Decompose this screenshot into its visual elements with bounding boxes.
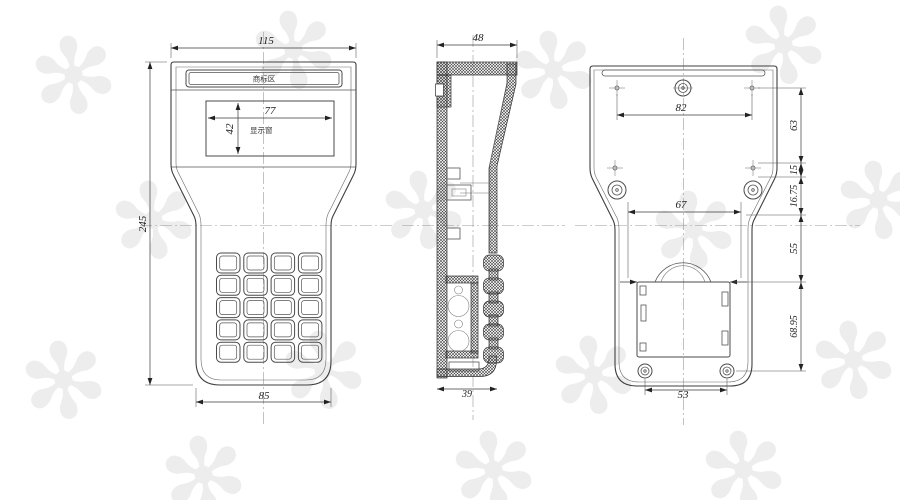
side-back-sloped-wall-section bbox=[489, 64, 516, 253]
side-top-cap-section bbox=[437, 62, 517, 75]
front-height-dim: 245 bbox=[137, 215, 149, 232]
battery-cover-clips bbox=[640, 286, 728, 351]
back-boss-right bbox=[744, 181, 762, 199]
back-view: 82 67 bbox=[575, 38, 860, 425]
three-view-drawing: 商标区 显示窗 77 42 115 245 bbox=[0, 0, 900, 500]
back-hole-mark-mid-right bbox=[745, 160, 761, 176]
keypad-key-inner bbox=[220, 345, 237, 359]
side-boss-2 bbox=[447, 185, 471, 200]
back-hole-mark-top-right bbox=[744, 80, 760, 96]
side-bottom-dim: 39 bbox=[461, 389, 472, 400]
display-height-dim: 42 bbox=[224, 123, 236, 135]
keypad-key-inner bbox=[247, 323, 264, 337]
keypad-key-inner bbox=[247, 345, 264, 359]
back-bottom-screw-left bbox=[638, 364, 652, 378]
keypad-key-inner bbox=[274, 278, 291, 292]
battery-cover-grip-arch-inner bbox=[661, 266, 705, 282]
back-bottom-screw-right bbox=[720, 364, 734, 378]
back-mid-holes-dim: 67 bbox=[676, 199, 688, 211]
keypad-key-inner bbox=[247, 256, 264, 270]
drawing-canvas: ✻✻✻✻✻✻✻✻✻✻✻✻✻✻✻ 商标区 显示窗 bbox=[0, 0, 900, 500]
back-dim-15: 15 bbox=[789, 165, 800, 175]
back-dim-63: 63 bbox=[788, 120, 800, 132]
front-width-dim: 115 bbox=[258, 35, 274, 47]
back-dim-68-95: 68.95 bbox=[789, 315, 800, 338]
keypad-grid bbox=[217, 253, 322, 362]
keypad-key-inner bbox=[274, 323, 291, 337]
keypad-key-inner bbox=[274, 345, 291, 359]
keypad-key-inner bbox=[220, 256, 237, 270]
back-bottom-screws-dim: 53 bbox=[678, 389, 690, 401]
trademark-area-label: 商标区 bbox=[253, 74, 276, 84]
back-right-dim-chain: 63 15 16.75 55 68.95 bbox=[733, 88, 806, 371]
back-boss-left bbox=[608, 181, 626, 199]
back-hole-mark-mid-left bbox=[607, 160, 623, 176]
keypad-key-inner bbox=[302, 323, 319, 337]
side-view: 48 39 bbox=[402, 32, 565, 420]
keypad-key-inner bbox=[302, 278, 319, 292]
keypad-key-inner bbox=[274, 301, 291, 315]
back-top-center-boss bbox=[673, 80, 693, 96]
side-left-wall-section bbox=[437, 62, 447, 378]
display-width-dim: 77 bbox=[265, 105, 277, 117]
keypad-key-inner bbox=[220, 323, 237, 337]
display-window-label: 显示窗 bbox=[250, 125, 273, 135]
battery-section-circle bbox=[448, 331, 469, 352]
battery-section-circle bbox=[448, 296, 469, 317]
side-battery-compartment bbox=[446, 276, 478, 358]
side-top-left-notch bbox=[436, 84, 444, 96]
back-top-holes-dim: 82 bbox=[676, 102, 688, 114]
keypad-key-inner bbox=[220, 301, 237, 315]
front-bottom-dim: 85 bbox=[259, 390, 271, 402]
side-boss-1 bbox=[447, 168, 460, 179]
keypad-key-inner bbox=[247, 278, 264, 292]
side-depth-dim: 48 bbox=[473, 32, 485, 44]
keypad-key-inner bbox=[220, 278, 237, 292]
battery-section-circle bbox=[455, 286, 463, 294]
keypad-key-inner bbox=[274, 256, 291, 270]
back-dim-55: 55 bbox=[788, 243, 800, 255]
keypad-key-inner bbox=[302, 345, 319, 359]
side-grip-knobs bbox=[484, 255, 504, 363]
keypad-key-inner bbox=[302, 256, 319, 270]
back-dim-16-75: 16.75 bbox=[789, 185, 800, 208]
keypad-key-inner bbox=[302, 301, 319, 315]
side-boss-3 bbox=[447, 228, 460, 239]
keypad-key-inner bbox=[247, 301, 264, 315]
front-view: 商标区 显示窗 77 42 115 245 bbox=[137, 32, 392, 425]
side-boss-2-inner bbox=[452, 189, 466, 196]
back-hole-mark-top-left bbox=[609, 80, 625, 96]
battery-section-circle bbox=[455, 320, 463, 328]
